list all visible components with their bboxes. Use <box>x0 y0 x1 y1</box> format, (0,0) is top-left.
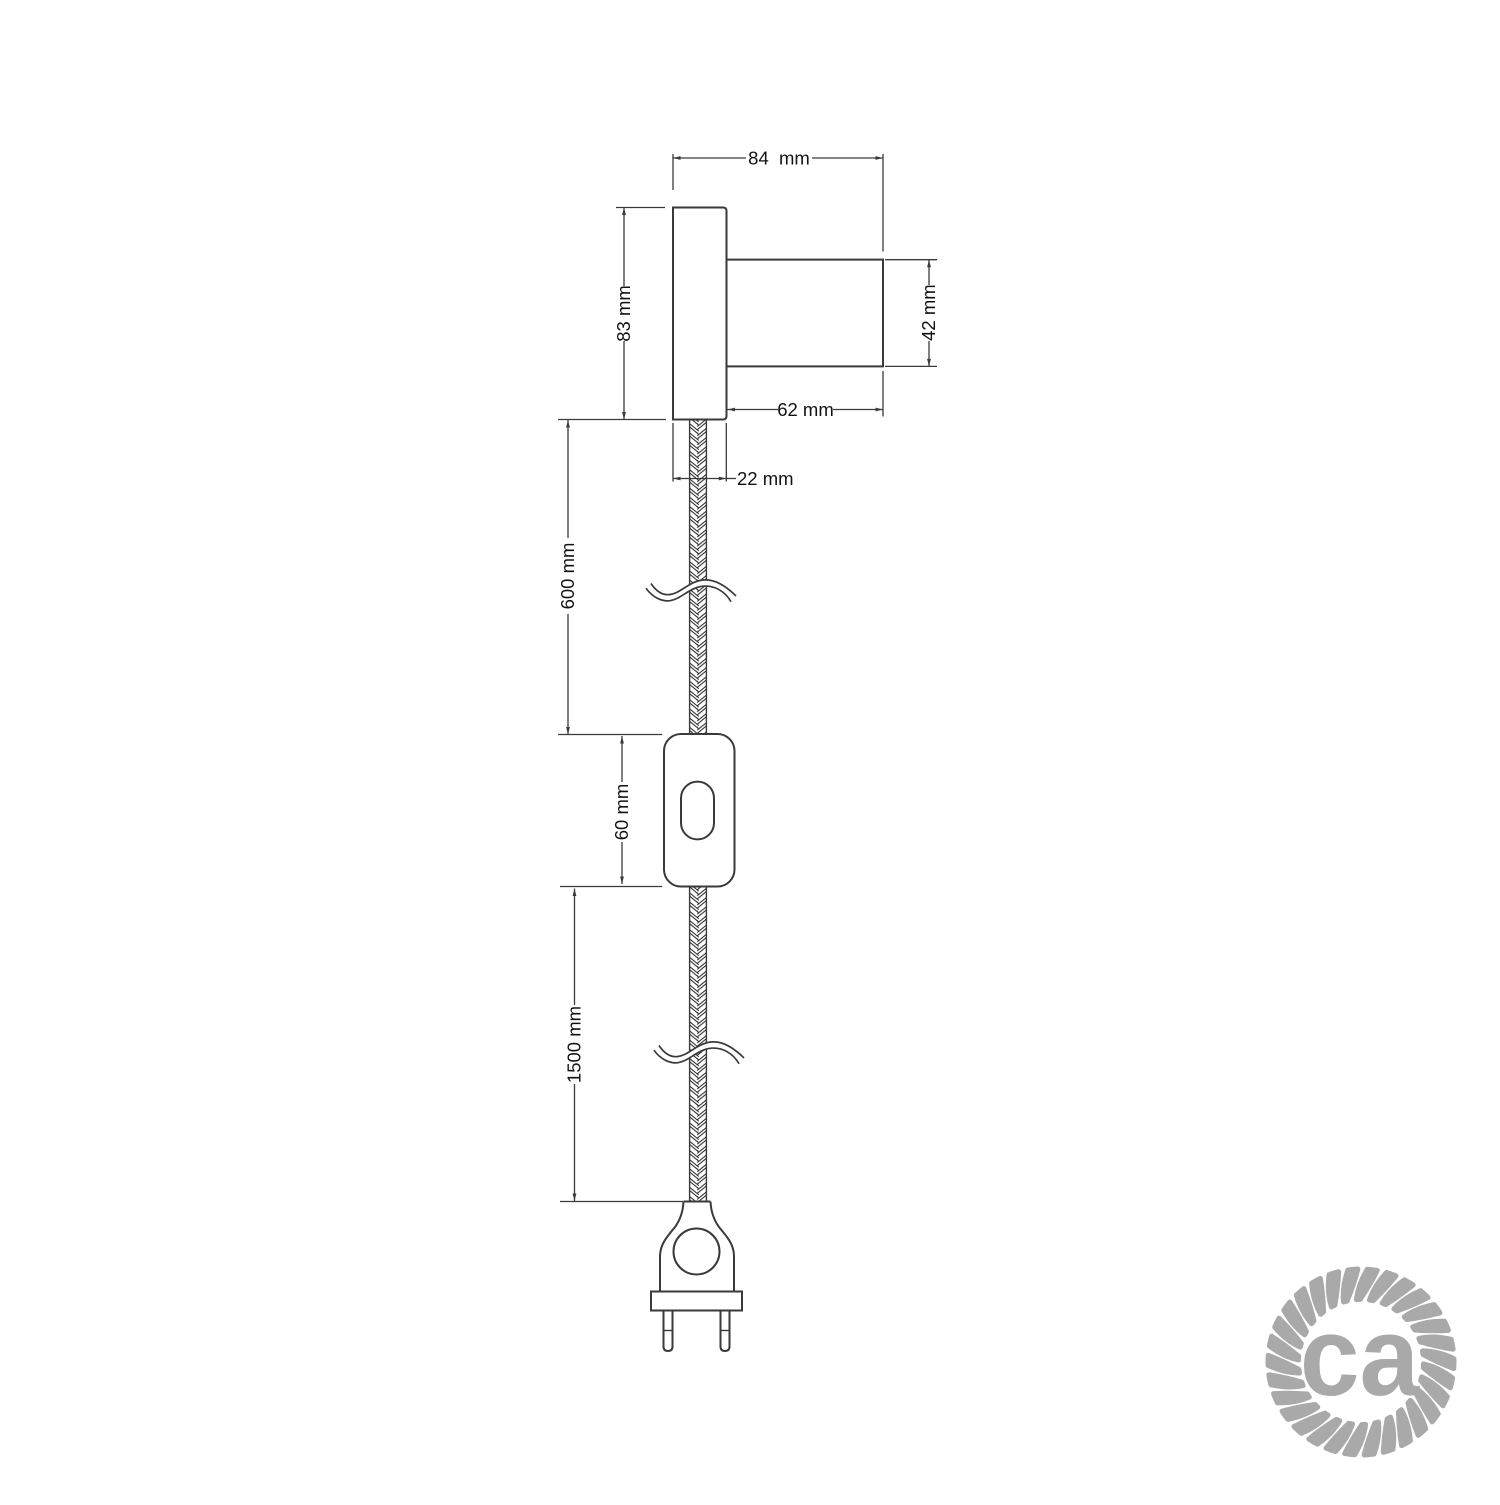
svg-text:1500 mm: 1500 mm <box>563 1006 584 1083</box>
svg-text:22 mm: 22 mm <box>737 468 794 489</box>
svg-text:600 mm: 600 mm <box>557 543 578 610</box>
svg-text:83 mm: 83 mm <box>613 285 634 342</box>
svg-text:62 mm: 62 mm <box>777 399 834 420</box>
svg-text:60 mm: 60 mm <box>611 784 632 841</box>
svg-text:42 mm: 42 mm <box>918 284 939 341</box>
svg-text:84 mm: 84 mm <box>748 148 810 169</box>
svg-text:ca: ca <box>1300 1295 1420 1420</box>
